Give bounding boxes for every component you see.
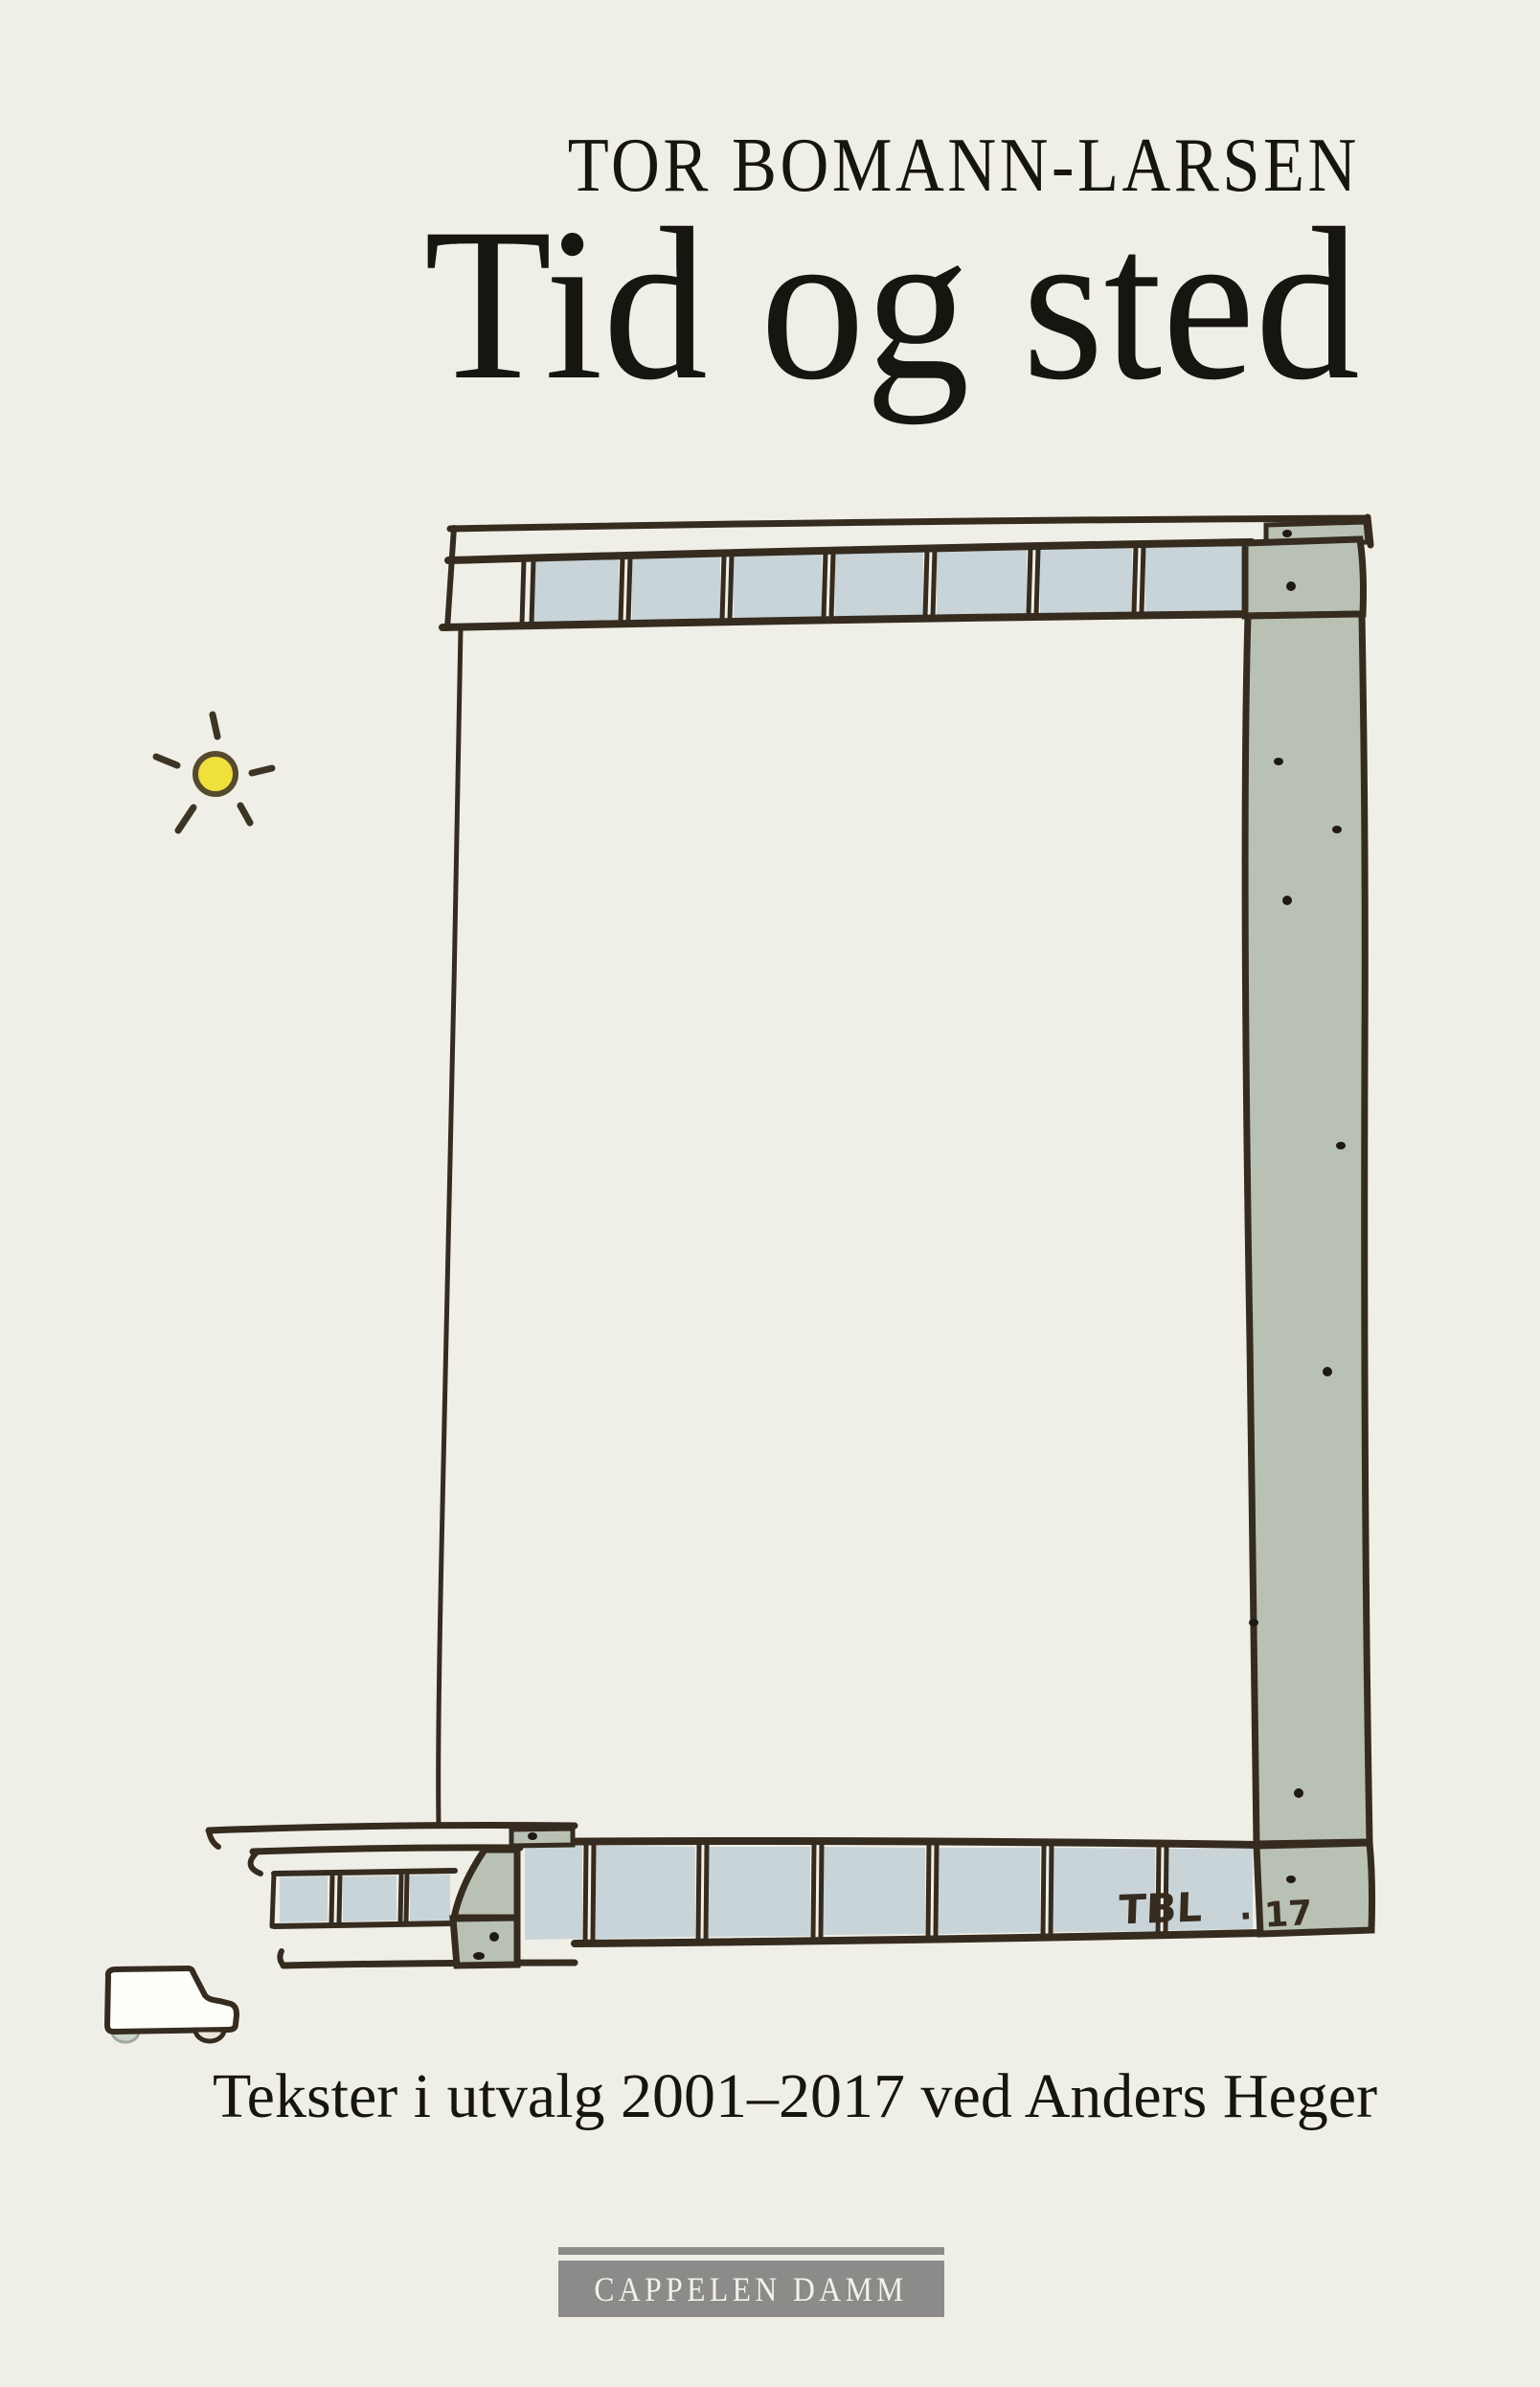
publisher-name: CAPPELEN DAMM — [595, 2272, 908, 2307]
sun-icon — [156, 715, 272, 830]
artist-signature: TBL — [1118, 1887, 1203, 1930]
right-column — [1245, 539, 1372, 1934]
publisher-logo: CAPPELEN DAMM — [558, 2247, 944, 2317]
truck-icon — [107, 1968, 237, 2042]
subtitle: Tekster i utvalg 2001–2017 ved Anders He… — [213, 2065, 1377, 2128]
top-beam — [442, 528, 1255, 628]
book-cover: TOR BOMANN-LARSEN Tid og sted TBL · 17 T… — [0, 0, 1540, 2387]
left-frame-line — [439, 628, 461, 1826]
publisher-rule — [558, 2247, 944, 2255]
artist-signature-year: · 17 — [1238, 1897, 1313, 1935]
book-title: Tid og sted — [424, 195, 1360, 414]
publisher-bar: CAPPELEN DAMM — [558, 2261, 944, 2317]
ink-dots — [473, 530, 1346, 1960]
